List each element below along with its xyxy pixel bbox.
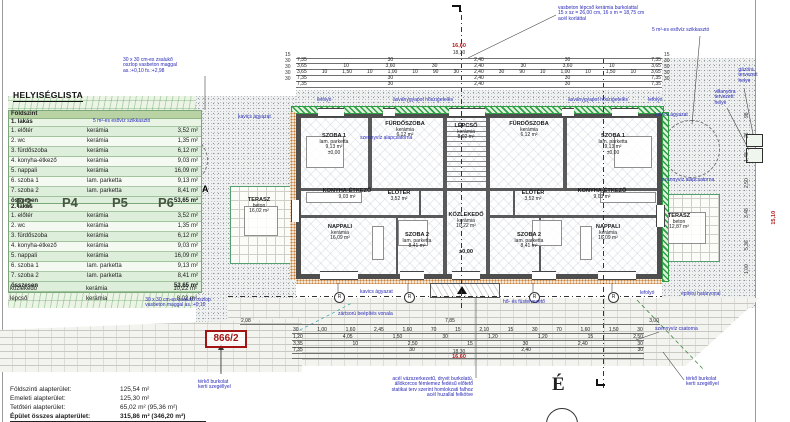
rainwater-marker: R bbox=[404, 292, 415, 303]
dimension-value: 15 bbox=[507, 328, 515, 333]
room-szoba1-left-line: ±0,00 bbox=[320, 151, 349, 157]
room-eloter-left: ELŐTÉR3,52 m² bbox=[388, 191, 411, 202]
room-table-cell: kerámia bbox=[87, 167, 147, 176]
room-table-row: 3. fürdőszobakerámia6,12 m² bbox=[9, 232, 201, 242]
note-building-line-line: zártsorú beépítés vonala bbox=[338, 312, 393, 317]
room-table-row: 2. wckerámia1,35 m² bbox=[9, 137, 201, 147]
dimension-value: 70 bbox=[555, 328, 563, 333]
note-lefolyo-top-left: lefolyó bbox=[317, 98, 331, 103]
room-furdoszoba-left-line: 6,12 m² bbox=[385, 133, 424, 139]
room-eloter-left-line: 3,52 m² bbox=[388, 197, 411, 203]
dimension-value-vertical: 3,48 bbox=[744, 208, 750, 218]
room-table-cell: 3. fürdőszoba bbox=[9, 147, 87, 156]
dim-total-bottom-red-line: 16,60 bbox=[452, 355, 466, 361]
room-nappali-left: NAPPALIkerámia16,09 m² bbox=[328, 225, 352, 242]
note-gravel-left-line: kavics ágyazat bbox=[238, 115, 271, 120]
dimension-value: 1,60 bbox=[345, 328, 357, 333]
room-table-cell: 16,09 m² bbox=[147, 167, 201, 176]
room-table-cell: 1,35 m² bbox=[147, 222, 201, 231]
room-table-cell: 1. előtér bbox=[9, 127, 87, 136]
room-table-cell: lam. parketta bbox=[87, 272, 147, 281]
parking-space-label-p6: P6 bbox=[158, 195, 174, 210]
note-lefolyo-top-right: lefolyó bbox=[648, 98, 662, 103]
room-table-cell: 8,41 m² bbox=[147, 187, 201, 196]
room-table-cell: 3,52 m² bbox=[147, 212, 201, 221]
summary-label: Tetőtéri alapterület: bbox=[10, 403, 120, 412]
room-table-cell: 4. konyha-étkező bbox=[9, 242, 87, 251]
note-gas-meter-line: helye bbox=[738, 79, 757, 84]
room-terasz-right-line: 12,87 m² bbox=[668, 225, 690, 231]
room-table-cell bbox=[87, 111, 147, 118]
dimension-value: 7,35 bbox=[296, 82, 308, 87]
dimension-value: 1,50 bbox=[392, 335, 404, 340]
note-soakaway-left: 5 m²-es esővíz szikkasztó bbox=[93, 119, 150, 124]
room-table-row: 1. előtérkerámia3,52 m² bbox=[9, 212, 201, 222]
room-table-cell: 1. lakás bbox=[9, 119, 87, 126]
note-column-top: 30 x 30 cm-es zsalukőoszlop vasbeton mag… bbox=[123, 58, 177, 74]
note-paving-left-line: kerti szegéllyel bbox=[198, 385, 231, 390]
room-table-cell: lam. parketta bbox=[87, 262, 147, 271]
room-table-cell: kerámia bbox=[87, 212, 147, 221]
dimension-value: 1,20 bbox=[537, 335, 549, 340]
room-table-cell: kerámia bbox=[87, 137, 147, 146]
note-gravel-right: kavics ágyazat bbox=[655, 113, 688, 118]
room-table-cell: kerámia bbox=[87, 242, 147, 251]
room-table-cell: kerámia bbox=[87, 222, 147, 231]
room-szoba2-left-line: 8,41 m² bbox=[403, 244, 432, 250]
room-table-apartment2: 2. lakás1. előtérkerámia3,52 m²2. wckerá… bbox=[8, 203, 202, 293]
room-table-cell: lépcső bbox=[8, 294, 86, 304]
dimension-row bbox=[292, 352, 644, 359]
dimension-value: 7,35 bbox=[650, 82, 662, 87]
note-paving-right-line: kerti szegéllyel bbox=[686, 382, 719, 387]
dimension-value-vertical: 1,48 bbox=[744, 152, 750, 162]
room-table-cell: 9,13 m² bbox=[147, 177, 201, 186]
section-marker-a: A bbox=[202, 184, 209, 194]
note-stairs-spec: vasbeton lépcső kerámia burkolattal15 x … bbox=[558, 6, 644, 22]
site-plan-canvas: HELYISÉGLISTA Földszint1. lakás1. előtér… bbox=[0, 0, 790, 422]
room-terasz-left-line: 16,02 m² bbox=[248, 209, 270, 215]
dim-ticks-left-line: 30 bbox=[285, 76, 291, 82]
room-konyha-right: KONYHA-ÉTKEZŐ9,03 m² bbox=[578, 189, 627, 200]
note-gas-meter: gázóratervezetthelye bbox=[738, 68, 757, 84]
section-flag-top-bar bbox=[459, 5, 461, 12]
room-table-cell: kerámia bbox=[86, 294, 146, 304]
dimension-value: 30 bbox=[531, 328, 539, 333]
dimension-value: 3,00 bbox=[648, 319, 660, 324]
room-szoba2-left: SZOBA 2lam. parketta8,41 m² bbox=[403, 233, 432, 250]
room-terasz-left: TERASZbeton16,02 m² bbox=[248, 198, 270, 215]
room-table-cell: 9,03 m² bbox=[147, 157, 201, 166]
dim-ticks-right: 1530303030 bbox=[664, 52, 670, 82]
room-table-row: 6. szoba 1lam. parketta9,13 m² bbox=[9, 262, 201, 272]
summary-label: Emeleti alapterület: bbox=[10, 394, 120, 403]
dimension-value: 2,45 bbox=[373, 328, 385, 333]
room-table-cell bbox=[147, 204, 201, 211]
rainwater-marker: R bbox=[334, 292, 345, 303]
note-lefolyo-top-right-line: lefolyó bbox=[648, 98, 662, 103]
dimension-row: 1,204,051,50301,201,20152,50 bbox=[292, 334, 644, 341]
room-table-cell: lam. parketta bbox=[87, 177, 147, 186]
dim-right-total-red: 15,10 bbox=[772, 211, 778, 225]
room-szoba1-right: SZOBA 1lam. parketta9,13 m²±0,00 bbox=[599, 134, 628, 156]
room-table-cell: 2. wc bbox=[9, 222, 87, 231]
note-boundary: építési határvonal bbox=[681, 292, 720, 297]
room-konyha-left-line: 9,03 m² bbox=[323, 195, 372, 201]
north-symbol: É bbox=[552, 374, 565, 396]
dimension-value-vertical: 98 bbox=[744, 112, 750, 118]
note-sewer-channel-line: szennyvíz csatorna bbox=[655, 327, 698, 332]
note-canopy-line: acél huzallal felkötve bbox=[333, 393, 473, 398]
room-table-row: 2. wckerámia1,35 m² bbox=[9, 222, 201, 232]
note-soakaway-right: 5 m²-es esővíz szikkasztó bbox=[652, 28, 709, 33]
room-furdoszoba-right: FÜRDŐSZOBAkerámia6,12 m² bbox=[509, 122, 548, 139]
summary-value: 125,30 m² bbox=[120, 394, 149, 403]
dim-total-top: 18,30 bbox=[453, 50, 466, 56]
rainwater-marker: R bbox=[608, 292, 619, 303]
room-table-row: 7. szoba 2lam. parketta8,41 m² bbox=[9, 272, 201, 282]
parking-space-label-p4: P4 bbox=[62, 195, 78, 210]
summary-row: Tetőtéri alapterület: 65,02 m² (95,36 m²… bbox=[10, 403, 206, 412]
dimension-value: 2,40 bbox=[473, 82, 485, 87]
room-table-cell: 9,03 m² bbox=[147, 242, 201, 251]
summary-value: 315,86 m² (346,20 m²) bbox=[120, 412, 185, 421]
note-gravel-bottom: kavics ágyazat bbox=[360, 290, 393, 295]
dim-total-top-red: 16,60 bbox=[452, 44, 466, 50]
note-sewer-channel: szennyvíz csatorna bbox=[655, 327, 698, 332]
summary-value: 65,02 m² (95,36 m²) bbox=[120, 403, 177, 412]
room-table-cell: 9,13 m² bbox=[147, 262, 201, 271]
parking-space-label-p5: P5 bbox=[112, 195, 128, 210]
room-table-row: 1. előtérkerámia3,52 m² bbox=[9, 127, 201, 137]
summary-value: 125,54 m² bbox=[120, 385, 149, 394]
dim-total-bottom-red: 16,60 bbox=[452, 355, 466, 361]
axis-line-horizontal bbox=[228, 296, 662, 297]
area-summary: Földszinti alapterület: 125,54 m² Emelet… bbox=[10, 385, 206, 422]
dimension-value: 30 bbox=[636, 328, 644, 333]
dimension-value: 1,20 bbox=[292, 335, 304, 340]
room-table-cell: 4. konyha-étkező bbox=[9, 157, 87, 166]
dimension-value: 1,60 bbox=[401, 328, 413, 333]
parking-space-label-p3: P3 bbox=[16, 195, 32, 210]
dimension-row: 2,087,853,00 bbox=[240, 318, 660, 325]
room-table-cell: kerámia bbox=[86, 284, 146, 294]
room-table-cell: kerámia bbox=[87, 127, 147, 136]
note-stairs-spec-line: acél korláttal bbox=[558, 17, 644, 22]
room-table-cell: 6,12 m² bbox=[147, 147, 201, 156]
room-table-cell: 5. nappali bbox=[9, 252, 87, 261]
dim-total-top-line: 18,30 bbox=[453, 50, 466, 56]
room-table-cell bbox=[147, 119, 201, 126]
dimension-value: 30 bbox=[564, 82, 572, 87]
dimension-value: 70 bbox=[430, 328, 438, 333]
room-szoba2-right: SZOBA 2lam. parketta8,41 m² bbox=[515, 233, 544, 250]
note-electric-meter: villanyóratervezetthelye bbox=[714, 90, 735, 106]
note-lefolyo-bottom: lefolyó bbox=[640, 291, 654, 296]
room-table-cell: 5. nappali bbox=[9, 167, 87, 176]
room-kozlekedo: KÖZLEKEDŐkerámia10,22 m² bbox=[448, 213, 483, 230]
note-insulation-right: ásványgyapot hőszigetelés bbox=[568, 98, 628, 103]
dimension-value: 4,05 bbox=[342, 335, 354, 340]
note-insulation-right-line: ásványgyapot hőszigetelés bbox=[568, 98, 628, 103]
dimension-value-vertical: 26 bbox=[744, 132, 750, 138]
note-gravel-right-line: kavics ágyazat bbox=[655, 113, 688, 118]
level-mark-line: ±0,00 bbox=[459, 250, 473, 256]
dimension-value: 2,10 bbox=[478, 328, 490, 333]
note-sewer-base-right: szennyvíz alapcsatorna bbox=[662, 178, 714, 183]
room-eloter-right: ELŐTÉR3,52 m² bbox=[522, 191, 545, 202]
note-column-top-line: as.:+0,10 fs.:+2,98 bbox=[123, 69, 177, 74]
dimension-value: 30 bbox=[387, 82, 395, 87]
room-szoba1-left: SZOBA 1lam. parketta9,13 m²±0,00 bbox=[320, 134, 349, 156]
dimension-row: 7,35302,40307,35 bbox=[296, 81, 662, 88]
room-lepcso-line: 8,02 m² bbox=[454, 135, 477, 141]
note-soakaway-right-line: 5 m²-es esővíz szikkasztó bbox=[652, 28, 709, 33]
note-soakaway-left-line: 5 m²-es esővíz szikkasztó bbox=[93, 119, 150, 124]
parcel-number: 866/2 bbox=[205, 330, 247, 348]
dimension-value: 30 bbox=[441, 335, 449, 340]
room-szoba1-right-line: ±0,00 bbox=[599, 151, 628, 157]
room-table-cell: 6. szoba 1 bbox=[9, 262, 87, 271]
room-konyha-right-line: 9,03 m² bbox=[578, 195, 627, 201]
room-lepcso: LÉPCSŐkerámia8,02 m² bbox=[454, 124, 477, 141]
room-table-row: 5. nappalikerámia16,09 m² bbox=[9, 167, 201, 177]
note-column-bottom-line: vasbeton maggal as.:+0,10 bbox=[145, 303, 211, 308]
dimension-row: 301,001,602,451,6070152,101530701,601,50… bbox=[292, 327, 644, 334]
room-table-cell: 3,52 m² bbox=[147, 127, 201, 136]
note-boundary-line: építési határvonal bbox=[681, 292, 720, 297]
room-kozlekedo-line: 10,22 m² bbox=[448, 224, 483, 230]
room-eloter-right-line: 3,52 m² bbox=[522, 197, 545, 203]
room-table-cell: 1,35 m² bbox=[147, 137, 201, 146]
dimension-value: 2,08 bbox=[240, 319, 252, 324]
room-table-cell: 16,09 m² bbox=[147, 252, 201, 261]
dimension-value: 1,50 bbox=[608, 328, 620, 333]
dim-right-total-red-line: 15,10 bbox=[772, 211, 778, 225]
dimension-value-vertical: 5,36 bbox=[744, 240, 750, 250]
note-smoke-vent-line: hő- és füstelvezető bbox=[503, 300, 545, 305]
note-lefolyo-top-left-line: lefolyó bbox=[317, 98, 331, 103]
note-gravel-bottom-line: kavics ágyazat bbox=[360, 290, 393, 295]
room-table-row: közlekedőkerámia10,22 m² bbox=[8, 284, 200, 294]
room-terasz-right: TERASZbeton12,87 m² bbox=[668, 214, 690, 231]
room-table-cell: 2. wc bbox=[9, 137, 87, 146]
room-table-row: 3. fürdőszobakerámia6,12 m² bbox=[9, 147, 201, 157]
dimension-value-vertical: 1,00 bbox=[744, 264, 750, 274]
room-szoba2-right-line: 8,41 m² bbox=[515, 244, 544, 250]
room-table-row: 4. konyha-étkezőkerámia9,03 m² bbox=[9, 157, 201, 167]
note-building-line: zártsorú beépítés vonala bbox=[338, 312, 393, 317]
room-nappali-right: NAPPALIkerámia16,09 m² bbox=[596, 225, 620, 242]
note-sewer-base-right-line: szennyvíz alapcsatorna bbox=[662, 178, 714, 183]
room-nappali-right-line: 16,09 m² bbox=[596, 236, 620, 242]
room-table-cell: közlekedő bbox=[8, 284, 86, 294]
dimension-value: 30 bbox=[292, 328, 300, 333]
note-insulation-left: ásványgyapot hőszigetelés bbox=[393, 98, 453, 103]
dimension-value: 1,60 bbox=[579, 328, 591, 333]
dimension-value: 2,50 bbox=[632, 335, 644, 340]
room-table-cell: kerámia bbox=[87, 252, 147, 261]
note-canopy: acél vázszerkezetű, dryvit burkolatú,áll… bbox=[333, 377, 473, 398]
room-furdoszoba-left: FÜRDŐSZOBAkerámia6,12 m² bbox=[385, 122, 424, 139]
room-table-cell: 8,41 m² bbox=[147, 272, 201, 281]
summary-row-total: Épület összes alapterület: 315,86 m² (34… bbox=[10, 412, 206, 422]
dim-total-top-red-line: 16,60 bbox=[452, 44, 466, 50]
room-table-cell: kerámia bbox=[87, 157, 147, 166]
room-table-cell: 10,22 m² bbox=[146, 284, 200, 294]
room-table-cell: kerámia bbox=[87, 232, 147, 241]
dimension-value-vertical: 2,50 bbox=[744, 178, 750, 188]
room-table-cell: Földszint bbox=[9, 111, 87, 118]
dimension-value: 1,00 bbox=[316, 328, 328, 333]
summary-row: Emeleti alapterület: 125,30 m² bbox=[10, 394, 206, 403]
room-furdoszoba-right-line: 6,12 m² bbox=[509, 133, 548, 139]
room-table-row: 6. szoba 1lam. parketta9,13 m² bbox=[9, 177, 201, 187]
note-column-bottom: 30 x 30 cm-es zsalukő oszlopvasbeton mag… bbox=[145, 298, 211, 309]
room-table-cell: 1. előtér bbox=[9, 212, 87, 221]
room-table-cell: 3. fürdőszoba bbox=[9, 232, 87, 241]
room-table-cell: 6. szoba 1 bbox=[9, 177, 87, 186]
room-table-row: 4. konyha-étkezőkerámia9,03 m² bbox=[9, 242, 201, 252]
note-paving-left: térkő burkolatkerti szegéllyel bbox=[198, 380, 231, 391]
room-table-row: 5. nappalikerámia16,09 m² bbox=[9, 252, 201, 262]
summary-label: Földszinti alapterület: bbox=[10, 385, 120, 394]
room-nappali-left-line: 16,09 m² bbox=[328, 236, 352, 242]
note-electric-meter-line: helye bbox=[714, 101, 735, 106]
room-list-heading: HELYISÉGLISTA bbox=[13, 90, 83, 102]
room-table-cell: 6,12 m² bbox=[147, 232, 201, 241]
summary-row: Földszinti alapterület: 125,54 m² bbox=[10, 385, 206, 394]
room-table-cell: kerámia bbox=[87, 147, 147, 156]
summary-label: Épület összes alapterület: bbox=[10, 412, 120, 421]
note-paving-right: térkő burkolatkerti szegéllyel bbox=[686, 377, 719, 388]
dim-ticks-left: 1530303030 bbox=[285, 52, 291, 82]
dimension-value: 15 bbox=[454, 328, 462, 333]
dim-ticks-right-line: 30 bbox=[664, 76, 670, 82]
dimension-value: 7,85 bbox=[444, 319, 456, 324]
level-mark: ±0,00 bbox=[459, 250, 473, 256]
room-table-cell: 7. szoba 2 bbox=[9, 272, 87, 281]
note-gravel-left: kavics ágyazat bbox=[238, 115, 271, 120]
section-flag-bottom-bar bbox=[596, 379, 598, 386]
room-table-apartment1: Földszint1. lakás1. előtérkerámia3,52 m²… bbox=[8, 110, 202, 208]
section-marker-a-line: A bbox=[202, 184, 209, 194]
note-insulation-left-line: ásványgyapot hőszigetelés bbox=[393, 98, 453, 103]
note-lefolyo-bottom-line: lefolyó bbox=[640, 291, 654, 296]
room-konyha-left: KONYHA-ÉTKEZŐ9,03 m² bbox=[323, 189, 372, 200]
dimension-value: 1,20 bbox=[487, 335, 499, 340]
note-smoke-vent: hő- és füstelvezető bbox=[503, 300, 545, 305]
room-table-cell bbox=[147, 111, 201, 118]
dimension-value: 15 bbox=[587, 335, 595, 340]
